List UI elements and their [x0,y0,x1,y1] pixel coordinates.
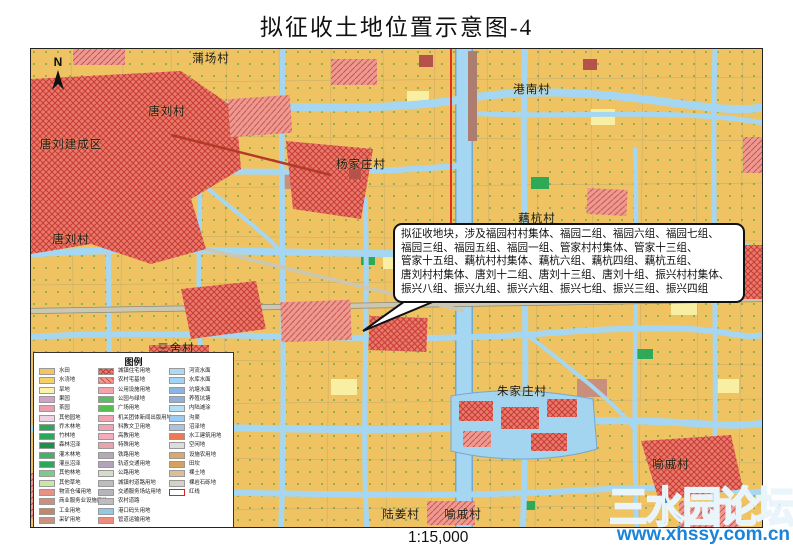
legend-swatch [169,489,185,496]
village-label: 唐刘村 [148,103,186,119]
legend-label: 轨道交通用地 [118,461,150,468]
legend-swatch [169,461,185,468]
legend-swatch [98,415,114,422]
legend-swatch [39,396,55,403]
legend-swatch [169,442,185,449]
legend-label: 乔木林地 [59,424,81,431]
legend-label: 广场用地 [118,405,140,412]
legend-swatch [98,517,114,524]
legend-label: 沟渠 [189,415,200,422]
map-frame: N 拟征收地块，涉及福园村村集体、福园二组、福园六组、福园七组、福园三组、福园五… [30,48,763,528]
legend-swatch [39,377,55,384]
legend-swatch [39,368,55,375]
callout-line: 福园三组、福园五组、福园一组、管家村村集体、管家十三组、 [401,242,737,256]
legend-swatch [98,461,114,468]
legend-label: 港口码头用地 [118,508,150,515]
legend-label: 交通服务场站用地 [118,489,161,496]
callout-line: 拟征收地块，涉及福园村村集体、福园二组、福园六组、福园七组、 [401,228,737,242]
callout-line: 唐刘村村集体、唐刘十二组、唐刘十三组、唐刘十组、振兴村村集体、 [401,269,737,283]
legend-label: 农村宅基地 [118,377,145,384]
legend-label: 其他草地 [59,480,81,487]
legend-swatch [39,461,55,468]
legend-swatch [98,387,114,394]
legend-swatch [39,480,55,487]
legend-label: 水田 [59,368,70,375]
legend-label: 机关团体新闻出版用地 [118,415,172,422]
legend-title: 图例 [34,355,233,368]
legend-swatch [98,480,114,487]
legend-label: 养殖坑塘 [189,396,211,403]
legend-swatch [39,415,55,422]
legend-label: 其他园地 [59,415,81,422]
village-label: 喻戚村 [652,456,690,472]
village-label: 陆姜村 [382,506,420,522]
village-label: 喻戚村 [444,506,482,522]
legend-label: 水库水面 [189,377,211,384]
legend-label: 空闲地 [189,442,205,449]
legend-swatch [98,498,114,505]
legend-swatch [98,368,114,375]
legend-swatch [98,405,114,412]
legend-label: 农村道路 [118,498,140,505]
legend-swatch [39,508,55,515]
village-label: 唐刘建成区 [40,136,103,152]
legend-label: 设施农用地 [189,452,216,459]
legend-label: 水工建筑用地 [189,433,221,440]
legend-swatch [98,508,114,515]
legend-label: 内陆滩涂 [189,405,211,412]
legend-label: 管道运输用地 [118,517,150,524]
legend-label: 河流水面 [189,368,211,375]
legend-label: 公路用地 [118,470,140,477]
watermark-url: www.xhssy.com.cn [617,524,790,546]
legend-swatch [98,424,114,431]
legend-swatch [98,442,114,449]
legend-label: 红线 [189,489,200,496]
legend-swatch [169,405,185,412]
legend-label: 水浇地 [59,377,75,384]
legend-swatch [169,424,185,431]
legend-swatch [98,489,114,496]
north-arrow: N [43,55,73,91]
legend-swatch [169,368,185,375]
legend-label: 公园与绿地 [118,396,145,403]
north-label: N [43,55,73,69]
legend-swatch [98,433,114,440]
legend-label: 茶园 [59,405,70,412]
page: 拟征收土地位置示意图-4 [0,0,793,555]
legend-swatch [39,517,55,524]
legend-label: 坑塘水面 [189,387,211,394]
legend-swatch [39,442,55,449]
callout-line: 振兴八组、振兴九组、振兴六组、振兴七组、振兴三组、振兴四组 [401,283,737,297]
legend-swatch [39,424,55,431]
legend-label: 灌丛沼泽 [59,461,81,468]
village-label: 杨家庄村 [336,156,386,172]
legend-swatch [169,480,185,487]
legend-label: 竹林地 [59,433,75,440]
legend-swatch [169,387,185,394]
legend-label: 城镇村道路用地 [118,480,156,487]
village-label: 朱家庄村 [497,383,547,399]
scale-label: 1:15,000 [408,529,468,547]
legend-swatch [169,433,185,440]
legend-swatch [98,452,114,459]
north-arrow-icon [51,69,65,91]
legend-label: 旱地 [59,387,70,394]
legend-label: 果园 [59,396,70,403]
legend-label: 其他林地 [59,470,81,477]
legend-label: 物流仓储用地 [59,489,91,496]
legend-swatch [39,405,55,412]
legend-label: 森林沼泽 [59,442,81,449]
legend-label: 铁路用地 [118,452,140,459]
legend-label: 灌木林地 [59,452,81,459]
legend-label: 裸土地 [189,470,205,477]
legend-label: 城镇住宅用地 [118,368,150,375]
legend-swatch [169,470,185,477]
legend-label: 公用设施用地 [118,387,150,394]
legend-label: 采矿用地 [59,517,81,524]
village-label: 唐刘村 [52,231,90,247]
callout-box: 拟征收地块，涉及福园村村集体、福园二组、福园六组、福园七组、福园三组、福园五组、… [393,223,745,303]
legend-swatch [169,415,185,422]
legend-swatch [39,498,55,505]
legend-swatch [169,452,185,459]
page-title: 拟征收土地位置示意图-4 [0,8,793,42]
legend-swatch [169,377,185,384]
legend-swatch [39,489,55,496]
legend-label: 特殊用地 [118,442,140,449]
legend-label: 工业用地 [59,508,81,515]
legend-label: 裸岩石砾地 [189,480,216,487]
village-label: 港南村 [513,81,551,97]
callout-line: 管家十五组、藕杭村村集体、藕杭六组、藕杭四组、藕杭五组、 [401,255,737,269]
legend-label: 科教文卫用地 [118,424,150,431]
legend: 图例 水田水浇地旱地果园茶园其他园地乔木林地竹林地森林沼泽灌木林地灌丛沼泽其他林… [33,352,234,528]
legend-swatch [169,396,185,403]
legend-swatch [39,387,55,394]
legend-label: 高教用地 [118,433,140,440]
legend-swatch [39,452,55,459]
legend-swatch [39,433,55,440]
legend-swatch [98,396,114,403]
village-label: 蒲场村 [192,50,230,66]
legend-label: 田坎 [189,461,200,468]
legend-label: 沼泽地 [189,424,205,431]
legend-swatch [98,377,114,384]
legend-swatch [39,470,55,477]
legend-swatch [98,470,114,477]
